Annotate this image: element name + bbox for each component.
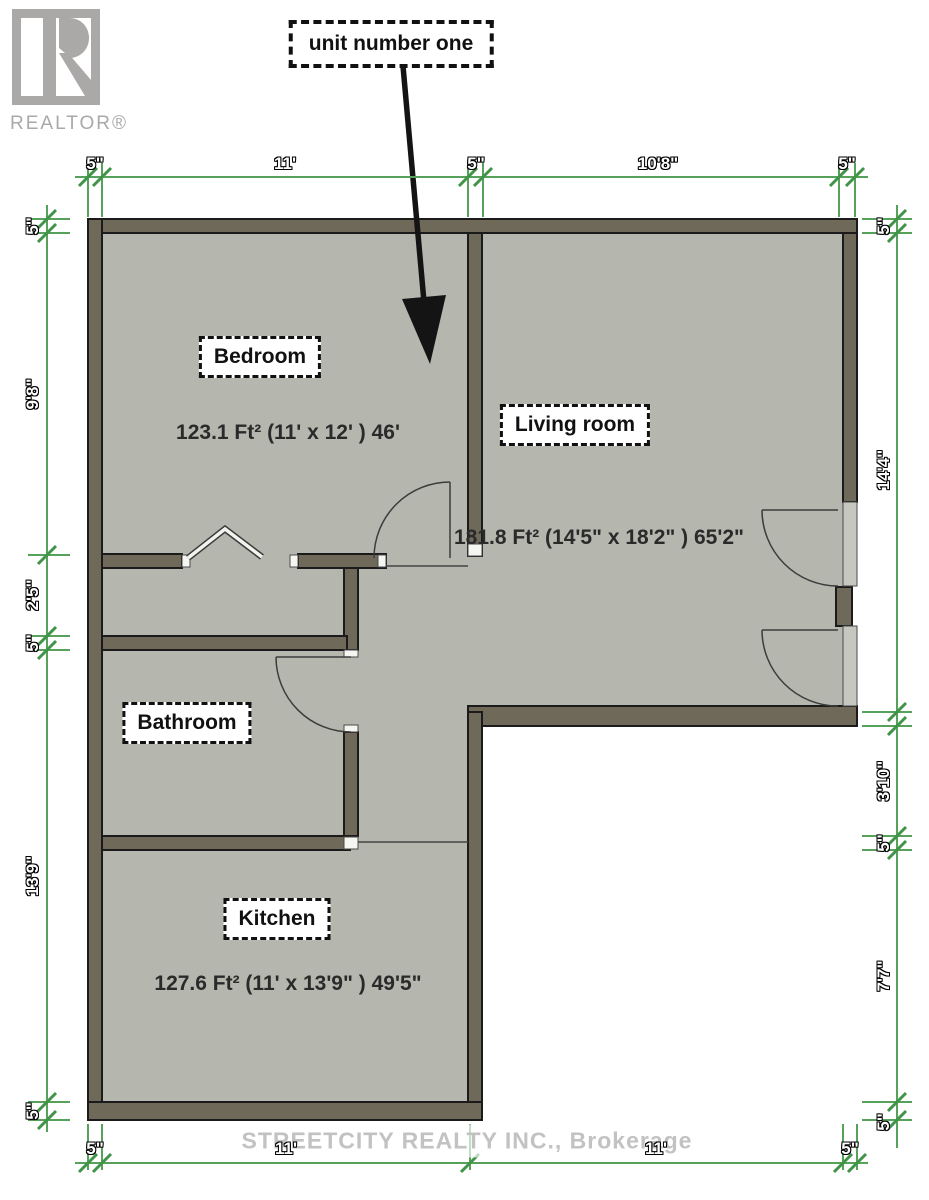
dimension-label: 5" — [841, 1139, 859, 1159]
dimension-label: 3'10" — [874, 761, 894, 801]
dimension-label: 9'8" — [23, 378, 43, 409]
brokerage-watermark: STREETCITY REALTY INC., Brokerage — [230, 1125, 705, 1158]
area-text-kitchen: 127.6 Ft² (11' x 13'9" ) 49'5" — [154, 972, 421, 996]
dimension-label: 7'7" — [874, 960, 894, 991]
sill — [378, 555, 386, 567]
dimension-label: 2'5" — [23, 579, 43, 610]
wall-exterior-bottom — [88, 1102, 482, 1120]
sill — [344, 725, 358, 732]
wall-exterior-right-upper — [843, 233, 857, 502]
dimension-label: 5" — [86, 154, 104, 174]
room-label-living: Living room — [500, 404, 650, 446]
sill — [344, 837, 358, 849]
dimension-label: 5" — [86, 1139, 104, 1159]
dimension-label: 10'8" — [638, 154, 678, 174]
dimension-label: 5" — [874, 834, 894, 852]
dimension-label: 5" — [23, 1102, 43, 1120]
wall-bedroom-living-divider — [468, 233, 482, 556]
wall-right-door-jamb — [836, 587, 852, 626]
wall-kitchen-right — [468, 712, 482, 1120]
dimension-label: 5" — [467, 154, 485, 174]
dimension-label: 11' — [274, 154, 296, 174]
sill — [290, 555, 298, 567]
area-text-living: 181.8 Ft² (14'5" x 18'2" ) 65'2" — [454, 526, 744, 550]
dimension-label: 5" — [874, 217, 894, 235]
door-opening-1 — [843, 502, 857, 586]
wall-step — [468, 706, 857, 726]
dimension-label: 11' — [275, 1139, 297, 1159]
dimension-label: 5" — [874, 1113, 894, 1131]
wall-exterior-left — [88, 219, 102, 1120]
room-label-bedroom: Bedroom — [199, 336, 321, 378]
sill — [344, 650, 358, 657]
dimension-label: 13'9" — [23, 856, 43, 896]
wall-bathroom-east — [344, 732, 358, 836]
dimension-label: 14'4" — [874, 450, 894, 490]
room-label-kitchen: Kitchen — [223, 898, 330, 940]
wall-bedroom-south-a — [102, 554, 182, 568]
dimension-label: 5" — [23, 634, 43, 652]
room-label-bathroom: Bathroom — [122, 702, 251, 744]
wall-bathroom-north — [102, 636, 347, 650]
dimension-label: 5" — [23, 217, 43, 235]
dimension-label: 5" — [838, 154, 856, 174]
floor-plan-page: REALTOR® — [0, 0, 929, 1200]
door-opening-2 — [843, 626, 857, 706]
dimension-label: 11' — [645, 1139, 667, 1159]
area-text-bedroom: 123.1 Ft² (11' x 12' ) 46' — [176, 421, 400, 445]
wall-bedroom-south-b — [298, 554, 386, 568]
unit-callout-label: unit number one — [289, 20, 494, 68]
wall-bathroom-south — [102, 836, 350, 850]
floor-plan-drawing — [0, 0, 929, 1200]
wall-exterior-top — [88, 219, 857, 233]
